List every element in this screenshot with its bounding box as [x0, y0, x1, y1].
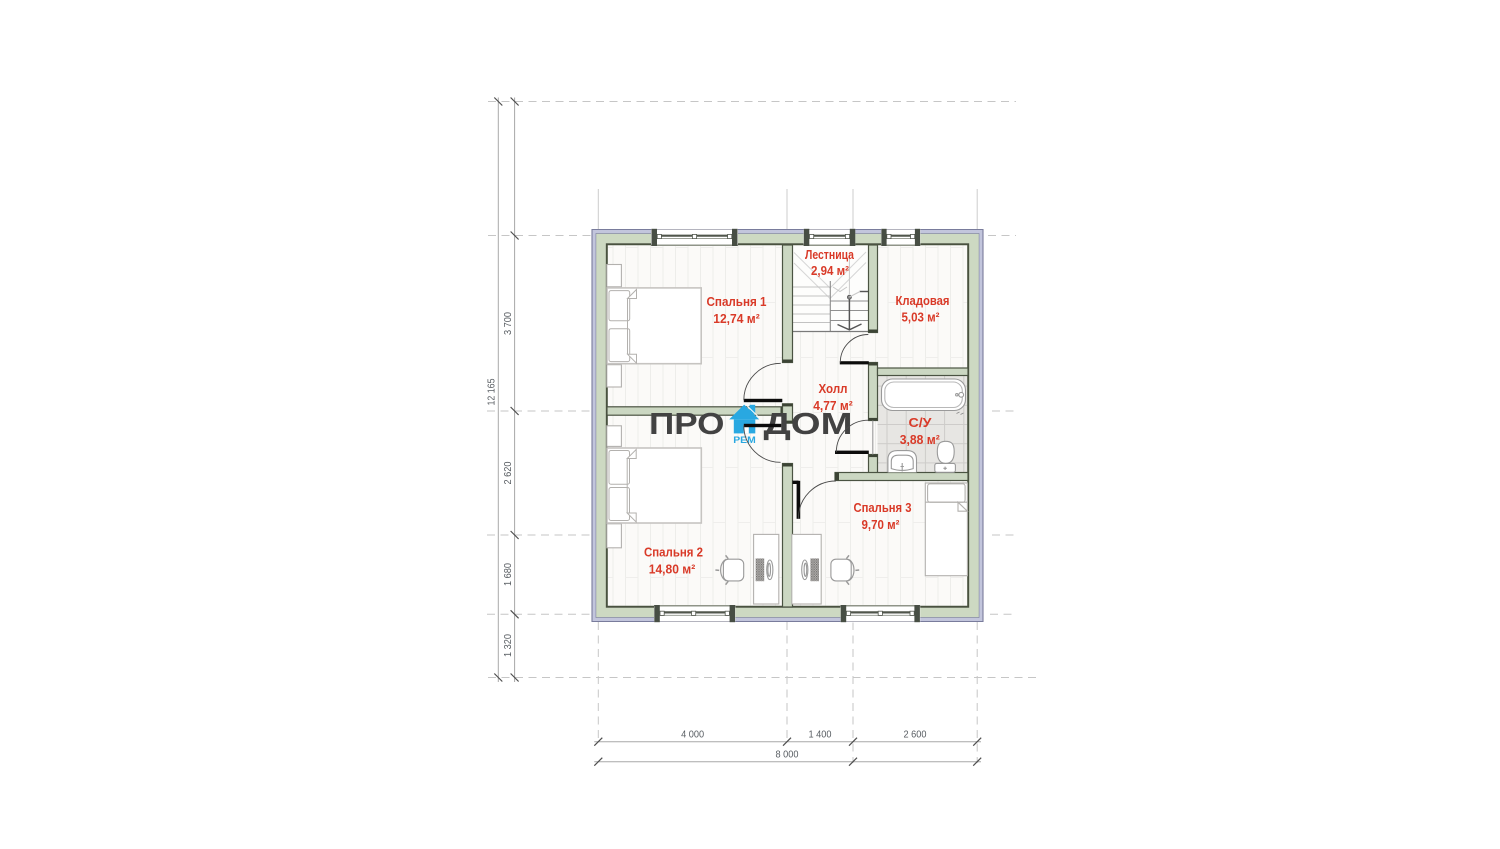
- svg-text:4,77 м²: 4,77 м²: [813, 399, 853, 413]
- svg-text:ПРО: ПРО: [649, 407, 725, 441]
- svg-text:Спальня 2: Спальня 2: [644, 546, 703, 560]
- svg-text:С/У: С/У: [909, 416, 932, 430]
- svg-text:1 320: 1 320: [503, 633, 514, 657]
- svg-text:12,74 м²: 12,74 м²: [713, 312, 760, 326]
- svg-text:8 000: 8 000: [776, 750, 800, 761]
- svg-text:3,88 м²: 3,88 м²: [900, 433, 940, 447]
- svg-text:12 165: 12 165: [487, 378, 498, 405]
- svg-text:Спальня 3: Спальня 3: [854, 501, 912, 515]
- svg-text:2 620: 2 620: [503, 461, 514, 485]
- svg-text:Кладовая: Кладовая: [896, 294, 950, 308]
- svg-text:1 680: 1 680: [503, 562, 514, 586]
- svg-text:5,03 м²: 5,03 м²: [902, 311, 940, 325]
- svg-text:14,80 м²: 14,80 м²: [649, 563, 696, 577]
- svg-text:2,94 м²: 2,94 м²: [811, 264, 849, 278]
- svg-text:Лестница: Лестница: [805, 248, 855, 262]
- svg-text:3 700: 3 700: [503, 311, 514, 335]
- svg-text:2 600: 2 600: [904, 730, 928, 741]
- svg-text:4 000: 4 000: [681, 730, 705, 741]
- svg-text:Холл: Холл: [819, 382, 848, 396]
- svg-text:Спальня 1: Спальня 1: [707, 295, 767, 309]
- svg-text:9,70 м²: 9,70 м²: [862, 518, 900, 532]
- svg-text:РЕМ: РЕМ: [733, 435, 756, 445]
- svg-text:1 400: 1 400: [809, 730, 833, 741]
